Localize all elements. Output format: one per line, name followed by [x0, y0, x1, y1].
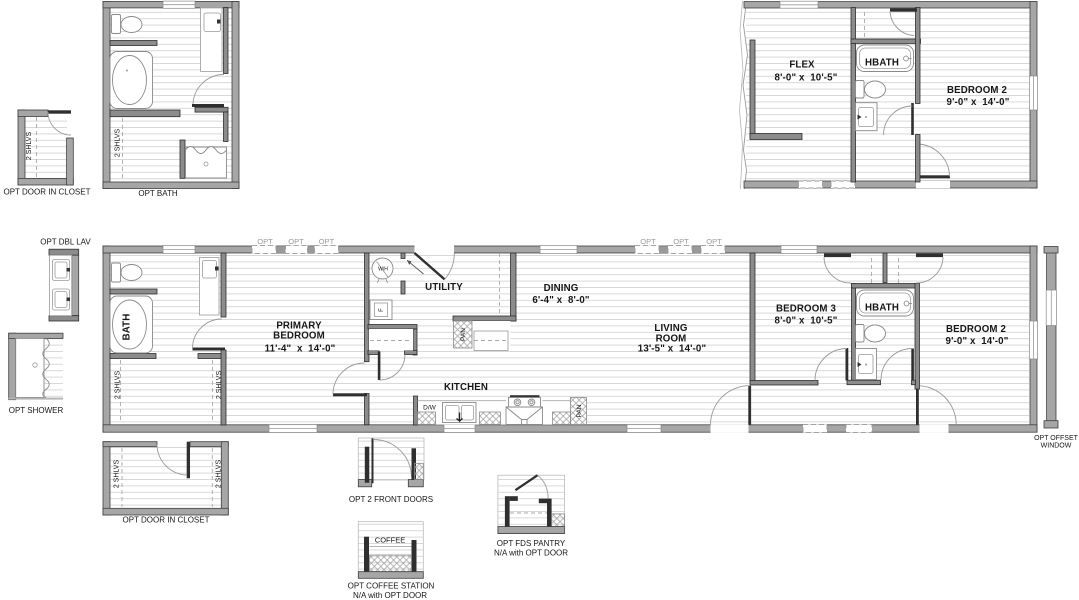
svg-text:8'-0" x 10'-5": 8'-0" x 10'-5" — [775, 73, 838, 84]
svg-text:2 SHLVS: 2 SHLVS — [115, 129, 122, 158]
svg-text:2 SHLVS: 2 SHLVS — [26, 132, 33, 161]
svg-text:BEDROOM: BEDROOM — [273, 331, 325, 342]
svg-text:PAN: PAN — [460, 328, 467, 341]
svg-text:OPT DOOR IN CLOSET: OPT DOOR IN CLOSET — [4, 188, 91, 197]
svg-text:9'-0" x 14'-0": 9'-0" x 14'-0" — [947, 97, 1010, 108]
svg-text:BEDROOM 3: BEDROOM 3 — [776, 304, 836, 315]
svg-text:2 SHLVS: 2 SHLVS — [216, 371, 223, 400]
svg-text:OPT DBL LAV: OPT DBL LAV — [40, 238, 91, 247]
svg-text:6'-4" x 8'-0": 6'-4" x 8'-0" — [532, 295, 589, 306]
svg-text:D/W: D/W — [423, 405, 437, 412]
svg-text:OPT DOOR IN CLOSET: OPT DOOR IN CLOSET — [123, 516, 210, 525]
svg-text:BATH: BATH — [122, 314, 133, 341]
svg-text:OPT COFFEE STATION: OPT COFFEE STATION — [348, 582, 435, 591]
svg-text:OPT: OPT — [640, 237, 656, 246]
svg-text:HBATH: HBATH — [865, 58, 899, 69]
svg-text:BEDROOM 2: BEDROOM 2 — [946, 324, 1006, 335]
svg-text:9'-0" x 14'-0": 9'-0" x 14'-0" — [946, 336, 1009, 347]
svg-text:LIVING: LIVING — [654, 323, 687, 334]
svg-text:COFFEE: COFFEE — [375, 536, 405, 545]
svg-text:8'-0" x 10'-5": 8'-0" x 10'-5" — [775, 316, 838, 327]
svg-text:BEDROOM 2: BEDROOM 2 — [947, 85, 1007, 96]
svg-text:11'-4" x 14'-0": 11'-4" x 14'-0" — [265, 343, 336, 354]
svg-text:HBATH: HBATH — [865, 303, 899, 314]
svg-text:13'-5" x 14'-0": 13'-5" x 14'-0" — [638, 344, 706, 355]
svg-text:W/H: W/H — [378, 267, 388, 273]
svg-text:OPT SHOWER: OPT SHOWER — [9, 406, 64, 415]
svg-text:WINDOW: WINDOW — [1041, 443, 1072, 450]
svg-text:2 SHLVS: 2 SHLVS — [114, 460, 121, 489]
svg-text:PAN: PAN — [576, 404, 583, 417]
svg-text:KITCHEN: KITCHEN — [444, 382, 488, 393]
svg-text:OPT BATH: OPT BATH — [138, 189, 177, 198]
svg-text:OPT: OPT — [257, 237, 273, 246]
svg-text:OPT: OPT — [319, 237, 335, 246]
svg-text:OPT: OPT — [706, 237, 722, 246]
svg-text:N/A with OPT DOOR: N/A with OPT DOOR — [353, 591, 427, 600]
svg-text:DINING: DINING — [544, 283, 579, 294]
svg-text:F: F — [379, 308, 385, 312]
svg-text:OPT OFFSET: OPT OFFSET — [1034, 435, 1079, 442]
svg-text:OPT FDS PANTRY: OPT FDS PANTRY — [497, 539, 566, 548]
svg-text:UTILITY: UTILITY — [425, 282, 463, 293]
svg-text:2 SHLVS: 2 SHLVS — [115, 371, 122, 400]
svg-text:FLEX: FLEX — [789, 60, 815, 71]
svg-text:2 SHLVS: 2 SHLVS — [216, 460, 223, 489]
svg-text:OPT 2 FRONT DOORS: OPT 2 FRONT DOORS — [349, 495, 433, 504]
svg-text:N/A with OPT DOOR: N/A with OPT DOOR — [494, 549, 568, 558]
svg-text:OPT: OPT — [288, 237, 304, 246]
svg-text:OPT: OPT — [673, 237, 689, 246]
